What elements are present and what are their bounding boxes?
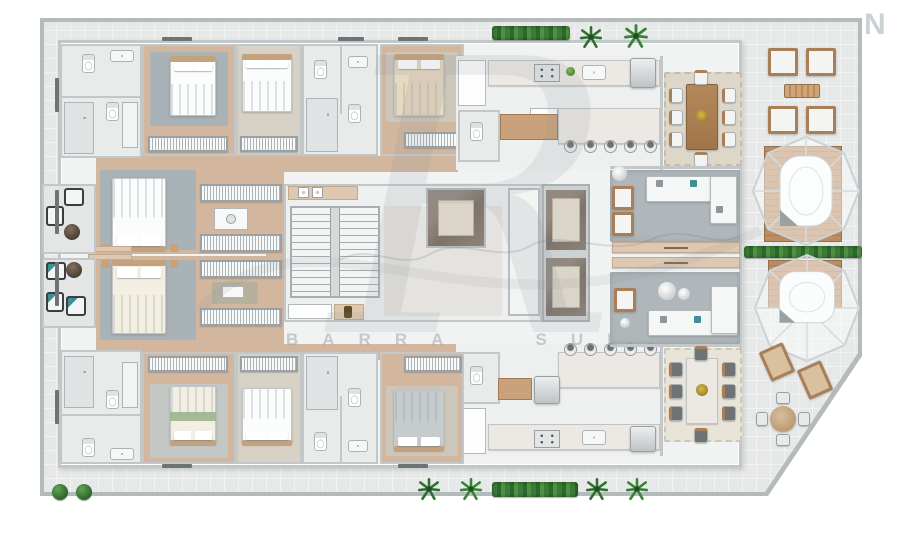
sink xyxy=(348,440,368,452)
kitchen-sink xyxy=(582,65,606,80)
armchair xyxy=(66,296,86,316)
lounge-chair-icon xyxy=(806,48,836,76)
palm-icon xyxy=(624,476,650,502)
shower xyxy=(64,102,94,154)
window xyxy=(55,190,59,234)
palm-icon xyxy=(622,22,650,50)
patio-chair xyxy=(776,434,790,446)
fridge xyxy=(534,376,560,404)
palm-icon xyxy=(584,476,610,502)
toilet xyxy=(106,102,119,121)
toilet xyxy=(348,388,361,407)
dining-chair xyxy=(722,406,736,421)
toilet xyxy=(82,438,95,457)
bath-partition xyxy=(62,414,140,416)
dining-chair xyxy=(694,428,708,443)
watermark-corner-letter: N xyxy=(864,8,886,42)
dining-chair xyxy=(722,88,736,103)
armchair xyxy=(64,188,84,206)
patio-chair xyxy=(798,412,810,426)
bush-icon xyxy=(76,484,92,500)
cooktop-icon xyxy=(534,430,560,448)
dining-chair xyxy=(669,110,683,125)
bed xyxy=(394,56,444,116)
toilet xyxy=(82,54,95,73)
slatted-table xyxy=(784,84,820,98)
dining-chair xyxy=(722,110,736,125)
bed-runner xyxy=(170,412,216,421)
coffee-station xyxy=(630,426,656,452)
dining-chair xyxy=(722,384,736,399)
bath-partition xyxy=(340,396,342,464)
sun-lounger xyxy=(797,360,834,400)
bath-partition xyxy=(62,96,140,98)
watermark-flourish xyxy=(180,140,780,380)
nightstand xyxy=(170,244,178,252)
window xyxy=(162,464,192,468)
hedge-icon xyxy=(492,26,570,40)
nightstand xyxy=(102,260,110,268)
bath-partition xyxy=(340,46,342,114)
hedge-icon xyxy=(492,482,578,497)
lounge-chair-icon xyxy=(768,48,798,76)
toilet xyxy=(314,60,327,79)
toilet xyxy=(348,104,361,123)
palm-icon xyxy=(416,476,442,502)
patio-chair xyxy=(756,412,768,426)
centerpiece xyxy=(696,110,708,122)
fridge xyxy=(630,58,656,88)
master-bed-lower xyxy=(112,262,166,334)
bed xyxy=(242,388,292,444)
window xyxy=(338,37,364,41)
dining-chair xyxy=(669,88,683,103)
toilet xyxy=(106,390,119,409)
sink xyxy=(110,448,134,460)
patio-chair xyxy=(776,392,790,404)
window xyxy=(55,262,59,306)
bed xyxy=(170,58,216,116)
window xyxy=(55,390,59,424)
sink xyxy=(110,50,134,62)
window xyxy=(398,37,428,41)
side-table xyxy=(66,262,82,278)
lounge-chair-icon xyxy=(806,106,836,134)
dining-chair xyxy=(669,384,683,399)
bed xyxy=(394,390,444,450)
sink xyxy=(348,56,368,68)
toilet xyxy=(314,432,327,451)
bush-icon xyxy=(52,484,68,500)
cooktop-icon xyxy=(534,64,560,82)
bath-vanity xyxy=(122,102,138,148)
dining-chair xyxy=(694,70,708,85)
side-table xyxy=(64,224,80,240)
island-wood-counter xyxy=(500,114,558,140)
toilet xyxy=(470,122,483,141)
palm-icon xyxy=(458,476,484,502)
centerpiece xyxy=(696,384,708,396)
bed xyxy=(242,56,292,112)
kitchen-island-upper xyxy=(558,108,660,144)
lounge-chair-icon xyxy=(768,106,798,134)
plant-pot xyxy=(566,67,575,76)
nightstand xyxy=(170,260,178,268)
kitchen-sink xyxy=(582,430,606,445)
window xyxy=(162,37,192,41)
pantry-cabinet xyxy=(458,60,486,106)
palm-icon xyxy=(578,24,604,50)
patio-table xyxy=(770,406,796,432)
dining-chair xyxy=(669,406,683,421)
bath-vanity xyxy=(122,362,138,408)
window xyxy=(55,78,59,112)
floor-plan-render: R BARRA SUL N xyxy=(0,0,900,535)
shower xyxy=(64,356,94,408)
island-wood-counter xyxy=(498,378,532,400)
window xyxy=(398,464,428,468)
master-bed-upper xyxy=(112,178,166,250)
